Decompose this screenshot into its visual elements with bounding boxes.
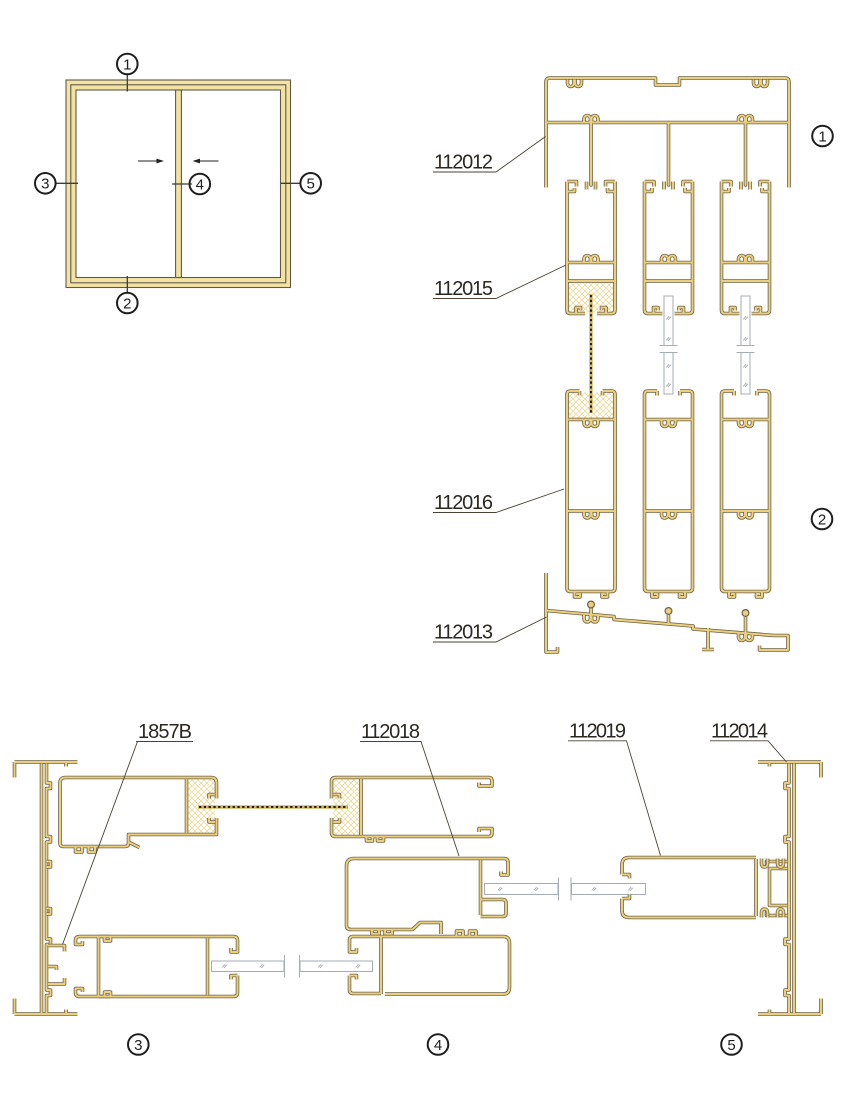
svg-text:1857B: 1857B	[138, 721, 192, 743]
svg-text:112019: 112019	[569, 721, 626, 743]
svg-text:5: 5	[727, 1037, 735, 1054]
svg-text:112018: 112018	[361, 721, 420, 743]
svg-text:4: 4	[434, 1037, 442, 1054]
svg-text:4: 4	[196, 176, 204, 193]
svg-text:112014: 112014	[711, 721, 768, 743]
svg-text:112013: 112013	[434, 622, 493, 644]
svg-text:1: 1	[123, 56, 131, 73]
svg-text:5: 5	[307, 176, 315, 193]
svg-text:112015: 112015	[434, 278, 493, 300]
svg-text:112016: 112016	[434, 492, 493, 514]
svg-text:3: 3	[41, 176, 49, 193]
svg-text:3: 3	[134, 1037, 142, 1054]
svg-text:112012: 112012	[434, 152, 493, 174]
svg-text:2: 2	[123, 295, 131, 312]
svg-text:1: 1	[818, 128, 826, 145]
svg-text:2: 2	[818, 511, 826, 528]
